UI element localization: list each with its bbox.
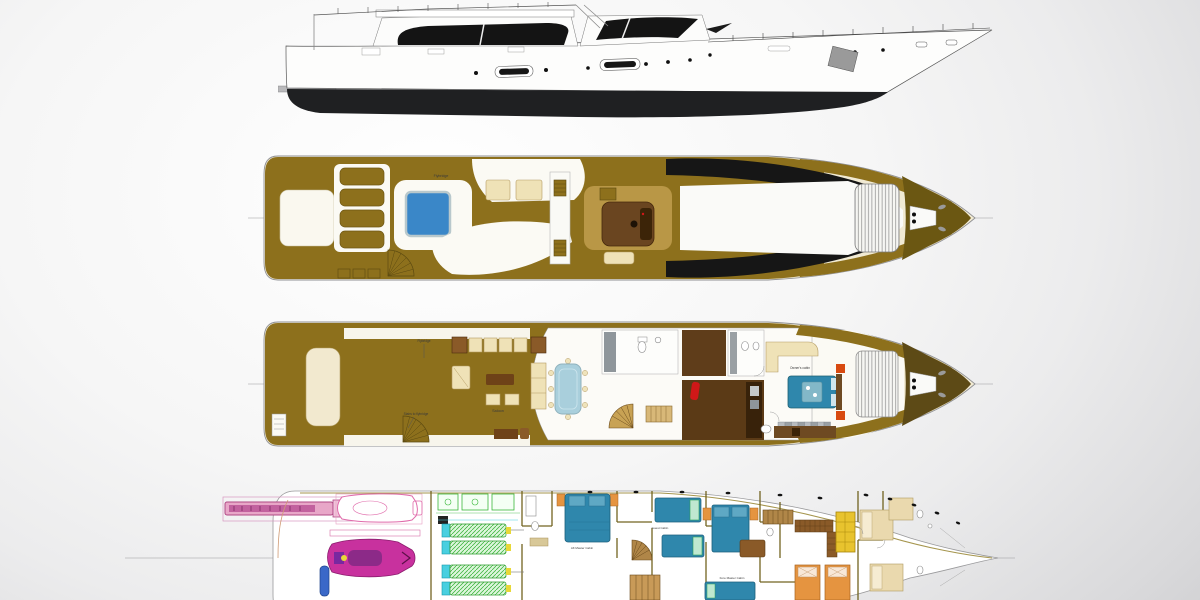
fore-master-label: Fore Master Cabin [720,576,745,580]
aft-sunpad [306,348,340,426]
tender [338,494,418,522]
flybridge-seat [516,180,542,200]
saloon-label: Saloon [492,409,504,413]
crew-mess-table [740,540,765,557]
flybridge-seat [486,180,510,200]
side-sofa [531,363,546,409]
main-deck-plan: Saloon [248,316,993,468]
yacht-side-profile [278,2,992,117]
tv-cabinet [494,429,518,439]
jacuzzi [406,192,450,236]
helm-bench [604,252,634,264]
transom-stairs [272,414,286,436]
coffee-table [486,374,514,385]
hardtop [376,10,574,17]
aft-master-label: Aft Master Cabin [571,546,594,550]
stairs-note: Stairs to flybridge [404,412,429,416]
side-deck [344,328,530,339]
yacht-ga-plans: Flybridge [0,0,1200,600]
garage-gear [320,566,329,596]
bow-sunpad [855,184,899,252]
flybridge-deck-plan: Flybridge [248,150,993,300]
flybridge-note: Flybridge [417,339,430,343]
galley [682,380,764,440]
end-table [452,337,467,353]
owners-cabin-label: Owner's cabin [790,366,810,370]
end-table [531,337,546,353]
ottoman [486,394,500,405]
owners-bath [728,330,764,376]
pantry [682,330,726,376]
day-head [602,330,678,374]
stern-platform [280,190,334,246]
steering-wheel [631,221,638,228]
hull-bottom [287,89,888,117]
helm-console [640,208,652,240]
lower-deck-plan: Aft Master Cabin Guest Cabin [120,482,1020,600]
ottoman [505,394,519,405]
flybridge-label: Flybridge [434,174,449,178]
guest-cabin-label: Guest Cabin [652,526,669,530]
foredeck-sunpad [856,351,898,417]
side-profile-view [278,2,998,142]
deck-boxes [338,269,380,278]
